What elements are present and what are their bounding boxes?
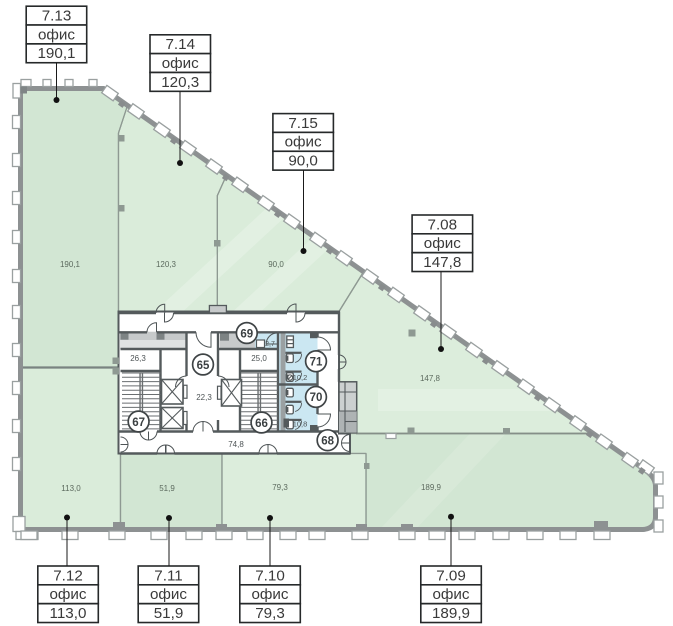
- svg-text:офис: офис: [38, 26, 75, 43]
- svg-text:25,0: 25,0: [251, 354, 267, 363]
- svg-text:79,3: 79,3: [272, 483, 288, 492]
- svg-text:120,3: 120,3: [156, 260, 177, 269]
- svg-text:147,8: 147,8: [420, 374, 441, 383]
- svg-text:офис: офис: [150, 586, 187, 603]
- svg-text:90,0: 90,0: [288, 153, 318, 170]
- svg-text:147,8: 147,8: [423, 254, 461, 271]
- svg-text:7.08: 7.08: [428, 216, 458, 233]
- svg-text:7.09: 7.09: [436, 567, 466, 584]
- svg-text:190,1: 190,1: [60, 260, 81, 269]
- svg-text:68: 68: [321, 436, 334, 448]
- svg-text:113,0: 113,0: [50, 605, 87, 622]
- svg-text:67: 67: [132, 417, 145, 429]
- svg-text:7.11: 7.11: [154, 567, 182, 584]
- svg-text:90,0: 90,0: [268, 260, 284, 269]
- svg-text:79,3: 79,3: [255, 605, 285, 622]
- svg-text:190,1: 190,1: [37, 45, 75, 62]
- svg-text:10,8: 10,8: [293, 420, 308, 429]
- svg-text:7.12: 7.12: [53, 567, 83, 584]
- svg-text:7.10: 7.10: [255, 567, 285, 584]
- svg-text:71: 71: [310, 357, 323, 369]
- svg-text:2,7: 2,7: [265, 341, 275, 348]
- svg-text:51,9: 51,9: [159, 484, 175, 493]
- svg-text:51,9: 51,9: [154, 605, 184, 622]
- svg-text:офис: офис: [424, 235, 461, 252]
- svg-text:офис: офис: [162, 55, 199, 72]
- svg-text:26,3: 26,3: [130, 354, 146, 363]
- svg-text:66: 66: [255, 418, 268, 430]
- svg-text:189,9: 189,9: [421, 483, 442, 492]
- svg-text:113,0: 113,0: [61, 484, 81, 493]
- svg-text:офис: офис: [251, 586, 288, 603]
- svg-text:65: 65: [197, 360, 210, 372]
- svg-text:70: 70: [310, 392, 323, 404]
- svg-text:10,2: 10,2: [293, 373, 308, 382]
- svg-text:22,3: 22,3: [196, 393, 212, 402]
- svg-text:офис: офис: [49, 586, 86, 603]
- svg-text:7.13: 7.13: [42, 8, 72, 25]
- svg-text:офис: офис: [432, 586, 469, 603]
- svg-text:офис: офис: [285, 134, 322, 151]
- svg-text:189,9: 189,9: [432, 605, 470, 622]
- svg-text:7.14: 7.14: [165, 36, 195, 53]
- svg-text:69: 69: [240, 328, 253, 340]
- svg-text:74,8: 74,8: [228, 440, 244, 449]
- svg-text:7.15: 7.15: [288, 115, 318, 132]
- svg-text:120,3: 120,3: [161, 74, 199, 91]
